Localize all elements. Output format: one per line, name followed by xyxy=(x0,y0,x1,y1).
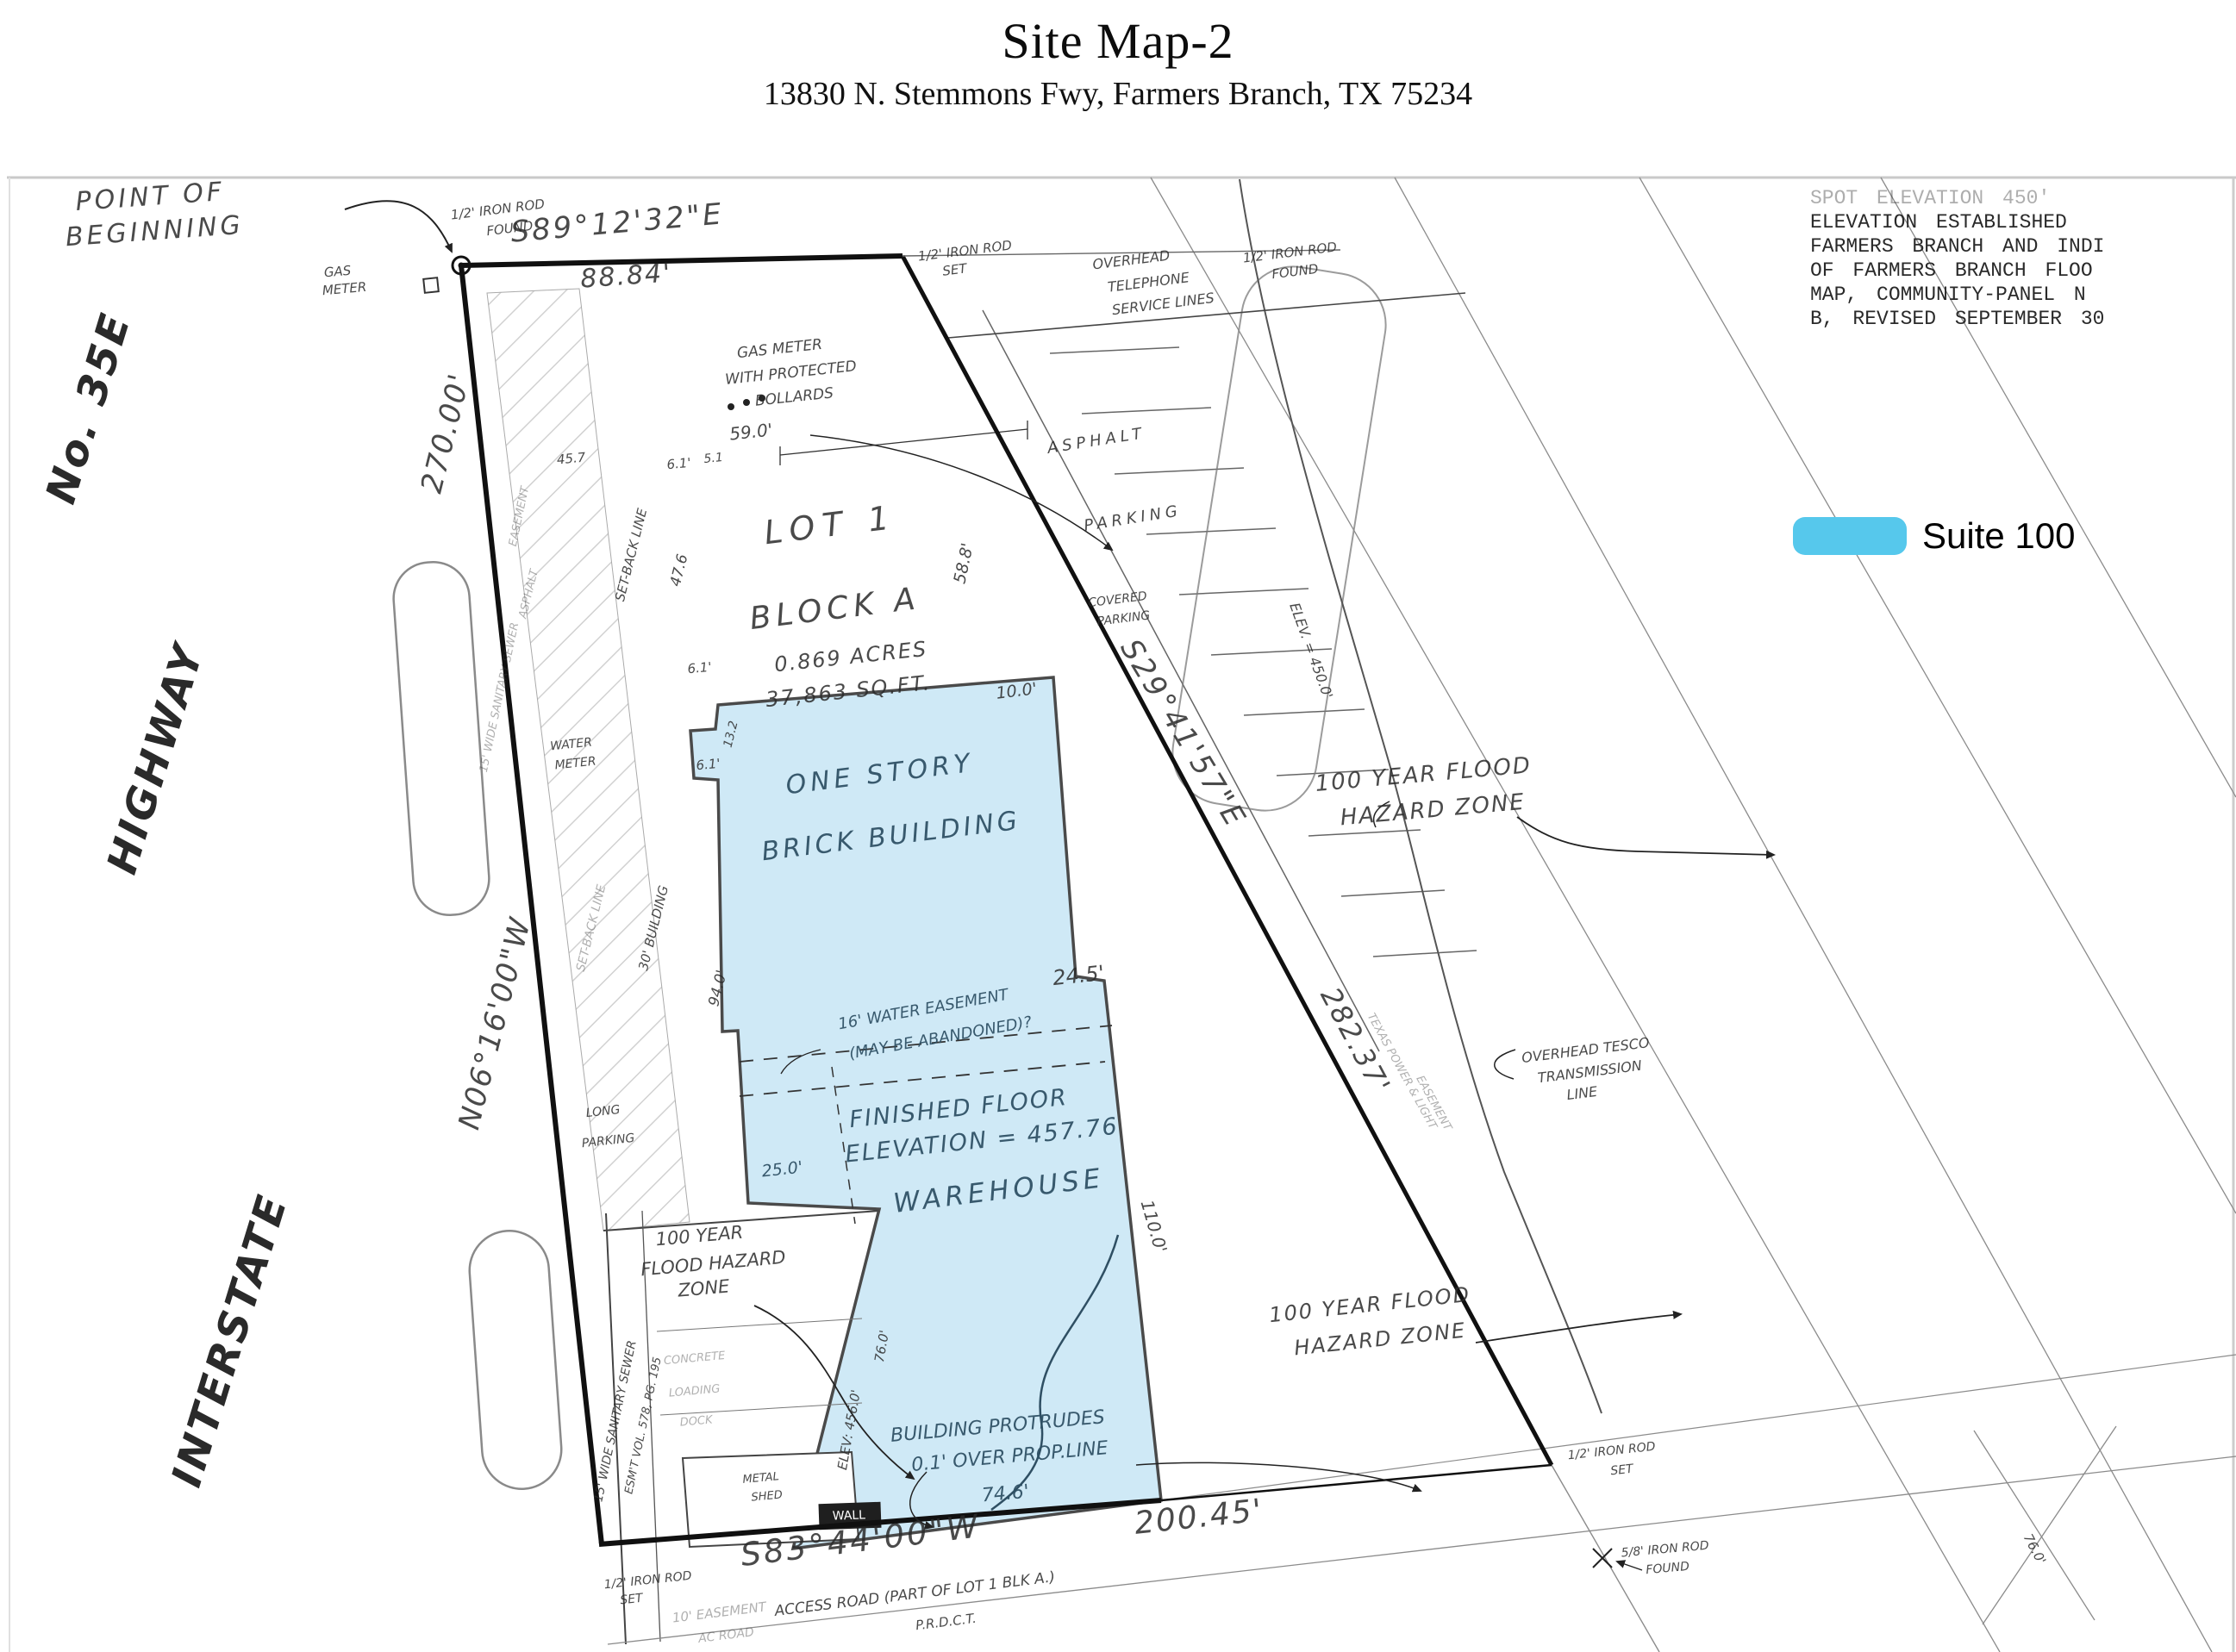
note-line: B, REVISED SEPTEMBER 30 xyxy=(1810,307,2236,331)
stall-tick xyxy=(1244,709,1365,715)
page-subtitle: 13830 N. Stemmons Fwy, Farmers Branch, T… xyxy=(0,75,2236,113)
note-line: SPOT ELEVATION 450' xyxy=(1810,186,2236,210)
suite-100-swatch xyxy=(1793,515,1907,557)
ramp-curve-upper xyxy=(391,559,491,917)
tesco-3: LINE xyxy=(1565,1083,1599,1103)
bearing-west-line: N06°16'00"W xyxy=(452,913,538,1133)
gas-meter-bollards-2: WITH PROTECTED xyxy=(724,358,857,389)
point-of-beginning-2: BEGINNING xyxy=(65,210,245,252)
dist-north-line: 88.84' xyxy=(579,258,672,294)
pob-dot xyxy=(459,263,465,269)
iron-rod-found-topright-1: 1/2' IRON ROD xyxy=(1242,239,1338,265)
bearing-east-line: S29°41'57"E xyxy=(1113,633,1252,834)
hwy-highway: HIGHWAY xyxy=(98,637,215,880)
block-a: BLOCK A xyxy=(747,581,921,637)
stall-tick xyxy=(1146,528,1276,534)
flood-zone-bot-2: HAZARD ZONE xyxy=(1293,1318,1467,1361)
gas-meter-bollards-1: GAS METER xyxy=(736,336,823,362)
flood-zone-notch-3: ZONE xyxy=(677,1275,731,1300)
stall-tick xyxy=(1082,408,1211,414)
legend-label: Suite 100 xyxy=(1922,515,2075,557)
dim-6-1-a: 6.1' xyxy=(666,455,691,472)
south-line-extension xyxy=(1161,1355,2236,1500)
protrudes-arrow-right xyxy=(1136,1462,1421,1491)
prdct: P.R.D.C.T. xyxy=(915,1611,977,1633)
pob-arrow xyxy=(345,201,452,252)
flood-zone-mid-1: 100 YEAR FLOOD xyxy=(1315,752,1533,797)
flood-bot-arrow xyxy=(1476,1314,1681,1343)
easement-10ft: 10' EASEMENT xyxy=(671,1599,769,1625)
covered-parking-2: PARKING xyxy=(1096,608,1151,628)
stall-tick xyxy=(1341,890,1445,896)
header: Site Map-2 13830 N. Stemmons Fwy, Farmer… xyxy=(0,0,2236,113)
overhead-telephone-3: SERVICE LINES xyxy=(1111,290,1215,318)
flood-mid-arrow xyxy=(1517,817,1774,855)
dim-74-6: 74.6' xyxy=(981,1481,1030,1507)
ac-road: AC ROAD xyxy=(696,1625,755,1646)
hwy-interstate: INTERSTATE xyxy=(162,1188,297,1493)
concrete: CONCRETE xyxy=(663,1350,726,1368)
dist-west-line: 270.00' xyxy=(415,369,478,496)
corner-cross-2 xyxy=(1983,1426,2116,1624)
dim-58-8: 58.8' xyxy=(950,541,977,585)
flood-zone-notch-2: FLOOD HAZARD xyxy=(640,1247,786,1281)
iron-rod-found-botright-1: 5/8' IRON ROD xyxy=(1621,1539,1709,1561)
iron-rod-marks xyxy=(1593,1549,1612,1568)
flood-zone-boundary-curve xyxy=(1240,179,1602,1413)
gas-meter-pob-2: METER xyxy=(322,279,367,298)
point-of-beginning-1: POINT OF xyxy=(74,177,226,217)
dim-59-0: 59.0' xyxy=(728,419,773,444)
iron-rod-found-botright-2: FOUND xyxy=(1646,1560,1690,1577)
gas-meter-bollards-3: BOLLARDS xyxy=(754,384,834,409)
hwy-no-35e: No. 35E xyxy=(36,307,140,509)
iron-rod-set-botleft-1: 1/2' IRON ROD xyxy=(603,1569,692,1593)
stall-tick xyxy=(1115,468,1244,474)
parking-right: PARKING xyxy=(1083,502,1183,535)
gas-meter-square xyxy=(423,277,439,293)
iron-rod-set-diag-2: SET xyxy=(1610,1462,1635,1479)
overhead-telephone-2: TELEPHONE xyxy=(1107,269,1191,296)
flood-zone-mid-2: HAZARD ZONE xyxy=(1340,789,1527,832)
lot-1: LOT 1 xyxy=(762,498,899,552)
dim-45-7: 45.7 xyxy=(556,450,586,468)
covered-parking-1: COVERED xyxy=(1088,589,1148,610)
suite-100-swatch-rect xyxy=(1793,517,1907,555)
stall-tick xyxy=(1373,951,1477,957)
bollard-dot xyxy=(743,399,750,406)
loading: LOADING xyxy=(668,1382,721,1400)
diag-line xyxy=(1640,178,2236,1213)
overhead-telephone-1: OVERHEAD xyxy=(1091,247,1171,273)
dim-line xyxy=(780,429,1027,455)
iron-rod-found-topright-2: FOUND xyxy=(1271,261,1319,282)
setback-line-label: SET-BACK LINE xyxy=(612,506,650,602)
note-line: ELEVATION ESTABLISHED xyxy=(1810,210,2236,234)
diag-line xyxy=(1151,178,2000,1652)
east-line-extension xyxy=(1552,1465,1659,1652)
stall-tick xyxy=(1308,830,1421,836)
acres: 0.869 ACRES xyxy=(773,637,929,677)
stall-tick xyxy=(1050,347,1179,353)
dim-5-1: 5.1 xyxy=(703,451,724,466)
asphalt-right: ASPHALT xyxy=(1046,424,1147,458)
note-line: FARMERS BRANCH AND INDI xyxy=(1810,234,2236,259)
iron-rod-set-topmid-2: SET xyxy=(941,260,969,279)
tesco-brace xyxy=(1495,1050,1515,1079)
boundary-north xyxy=(461,256,903,265)
note-line: MAP, COMMUNITY-PANEL N xyxy=(1810,283,2236,307)
gas-meter-pob-1: GAS xyxy=(323,263,352,281)
corner-cross-1 xyxy=(1974,1431,2095,1620)
flood-note-block: SPOT ELEVATION 450' ELEVATION ESTABLISHE… xyxy=(1810,186,2236,331)
page-title: Site Map-2 xyxy=(0,12,2236,70)
dim-110-0: 110.0' xyxy=(1137,1198,1171,1256)
dock: DOCK xyxy=(679,1413,714,1429)
iron-rod-set-botleft-2: SET xyxy=(620,1592,645,1608)
dock-line-1 xyxy=(657,1318,862,1331)
note-line: OF FARMERS BRANCH FLOO xyxy=(1810,259,2236,283)
boundary-south-thin xyxy=(1161,1465,1552,1500)
access-road: ACCESS ROAD (PART OF LOT 1 BLK A.) xyxy=(773,1568,1057,1620)
diag-line xyxy=(1395,178,2212,1652)
dim-59-line xyxy=(780,421,1027,465)
dim-47-6: 47.6 xyxy=(667,552,692,589)
iron-rod-arrow xyxy=(1617,1562,1642,1570)
dim-6-1-c: 6.1' xyxy=(696,756,721,773)
bollard-dot xyxy=(728,403,734,410)
ramp-curve-lower xyxy=(467,1228,565,1492)
metal-shed-2: SHED xyxy=(751,1488,783,1504)
dim-6-1-b: 6.1' xyxy=(687,659,712,676)
legend: Suite 100 xyxy=(1793,515,2075,557)
